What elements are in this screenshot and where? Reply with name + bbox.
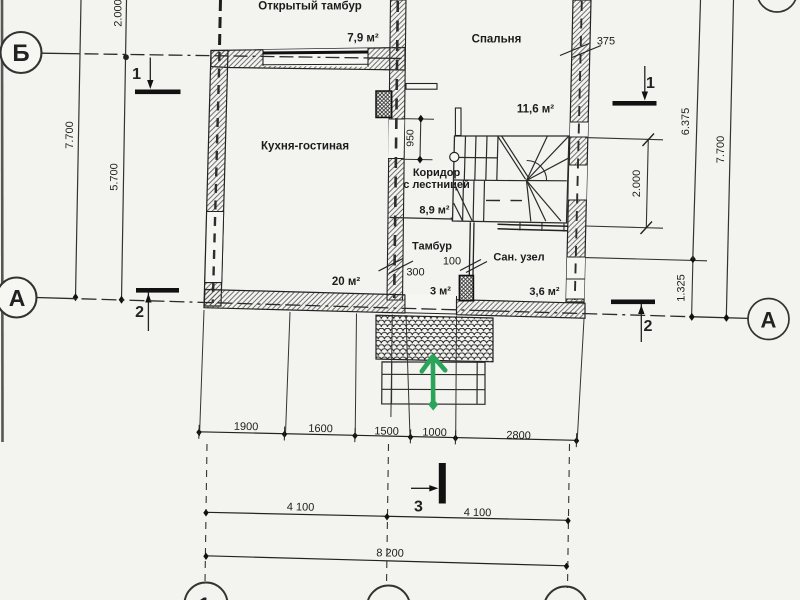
svg-text:1: 1 — [646, 75, 655, 92]
svg-text:4 100: 4 100 — [287, 501, 315, 514]
svg-text:2: 2 — [644, 318, 653, 335]
svg-text:4 100: 4 100 — [464, 507, 492, 520]
svg-text:Сан. узел: Сан. узел — [493, 252, 544, 264]
svg-text:950: 950 — [405, 129, 417, 147]
svg-text:Спальня: Спальня — [472, 34, 522, 46]
svg-text:А: А — [761, 308, 777, 333]
svg-text:8 200: 8 200 — [376, 547, 404, 560]
svg-text:2.000: 2.000 — [631, 170, 643, 198]
svg-text:1000: 1000 — [422, 427, 447, 440]
svg-text:2800: 2800 — [506, 430, 531, 443]
svg-text:6.375: 6.375 — [680, 108, 692, 136]
svg-text:Открытый тамбур: Открытый тамбур — [258, 1, 362, 13]
svg-text:1: 1 — [199, 595, 210, 600]
svg-text:с лестницей: с лестницей — [403, 179, 470, 191]
svg-text:Тамбур: Тамбур — [412, 241, 452, 253]
svg-text:Б: Б — [12, 40, 29, 67]
svg-text:5.700: 5.700 — [109, 163, 121, 191]
svg-text:300: 300 — [406, 267, 424, 279]
svg-text:1900: 1900 — [234, 421, 259, 434]
svg-text:375: 375 — [597, 36, 615, 48]
svg-text:2: 2 — [135, 304, 144, 321]
svg-text:3 м²: 3 м² — [430, 286, 451, 298]
svg-text:1: 1 — [132, 66, 141, 83]
svg-text:7.700: 7.700 — [715, 136, 727, 164]
svg-text:3: 3 — [414, 499, 423, 516]
svg-text:1600: 1600 — [308, 423, 333, 436]
svg-text:Кухня-гостиная: Кухня-гостиная — [261, 141, 349, 153]
svg-text:100: 100 — [443, 256, 461, 268]
svg-text:11,6 м²: 11,6 м² — [517, 104, 554, 116]
svg-text:1500: 1500 — [374, 425, 399, 438]
svg-text:А: А — [9, 285, 26, 311]
svg-text:8,9 м²: 8,9 м² — [419, 205, 449, 217]
svg-text:20 м²: 20 м² — [332, 276, 360, 288]
svg-text:7.700: 7.700 — [64, 121, 76, 149]
svg-text:1.325: 1.325 — [676, 274, 688, 302]
svg-text:3,6 м²: 3,6 м² — [529, 286, 559, 298]
svg-text:7,9 м²: 7,9 м² — [347, 33, 379, 45]
svg-text:2.000: 2.000 — [113, 0, 125, 27]
